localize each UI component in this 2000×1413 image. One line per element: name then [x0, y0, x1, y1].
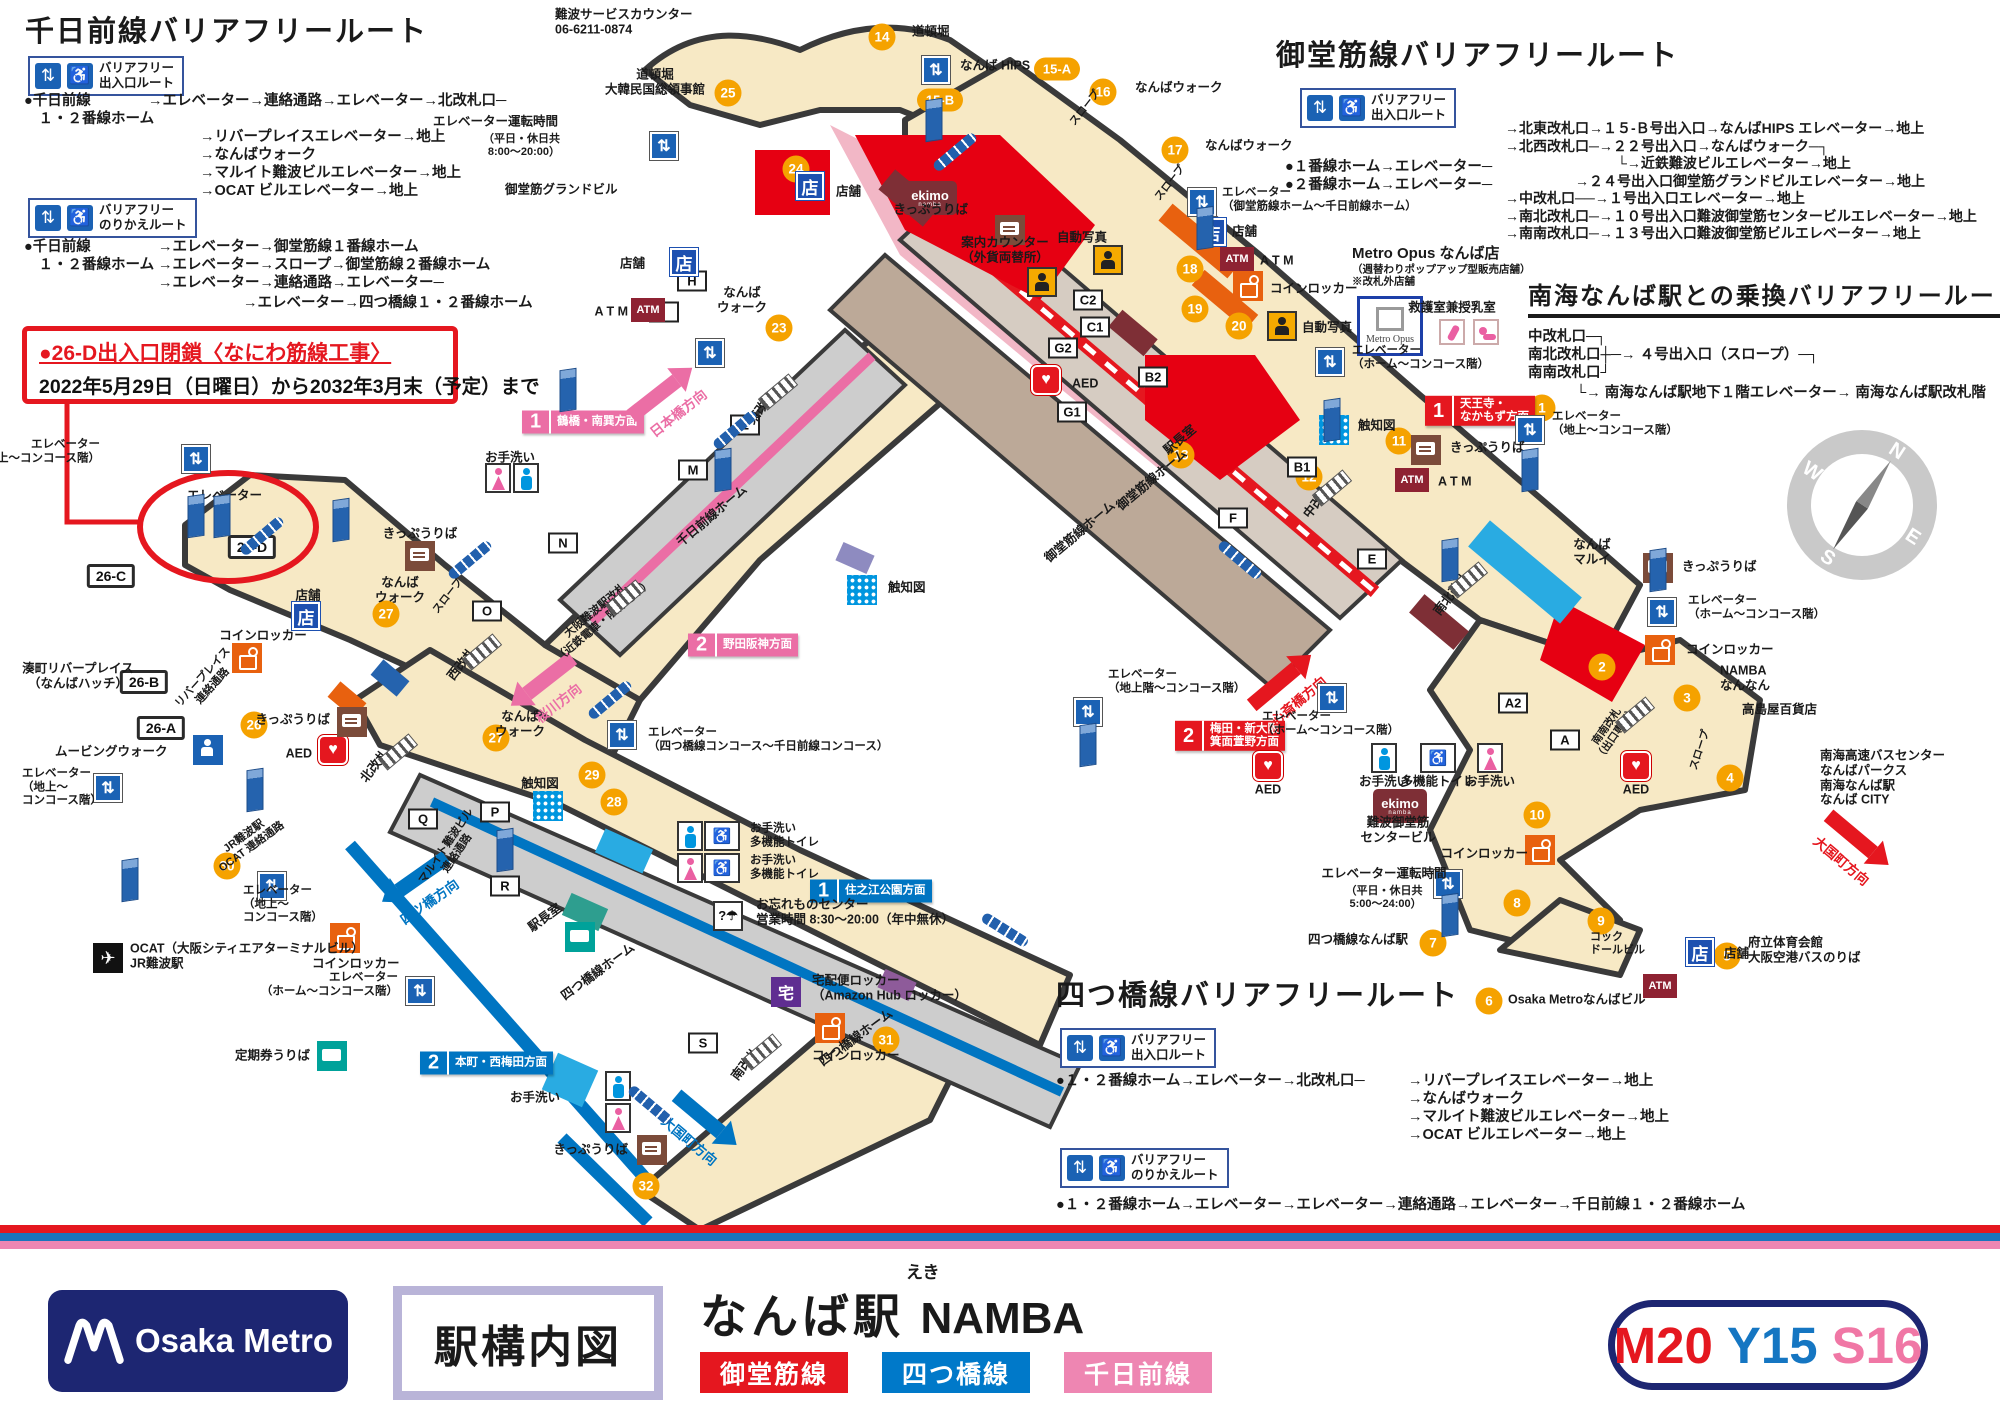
elevator-icon: ⇅ — [1316, 348, 1344, 376]
map-text-label: A T M — [1438, 475, 1472, 490]
elevator-point-A2: A2 — [1498, 693, 1528, 714]
exit-number-20: 20 — [1226, 313, 1253, 340]
elevator-point-C1: C1 — [1080, 317, 1110, 338]
station-furigana: えき — [906, 1258, 940, 1283]
map-text-label: 御堂筋線ホーム — [1042, 498, 1118, 565]
station-map-label-box: 駅構内図 — [393, 1286, 663, 1400]
map-text-label: 自動写真 — [1057, 231, 1107, 246]
escalator-icon — [627, 1084, 674, 1126]
ticket-machine-icon — [337, 707, 367, 737]
accessible-toilet-icon: ♿ — [704, 821, 740, 851]
map-text-label: 道頓堀 大韓民国総領事館 — [605, 67, 705, 97]
elevator-shaft — [333, 498, 350, 542]
map-text-label: コインロッカー — [1270, 282, 1358, 297]
elevator-point-M: M — [678, 460, 708, 481]
map-text-label: A T M — [1260, 254, 1294, 269]
elevator-shaft — [1324, 398, 1341, 442]
aed-icon: ♥ — [1621, 751, 1651, 781]
map-text-label: スロープ — [1067, 88, 1102, 128]
map-text-label: コインロッカー — [812, 1049, 900, 1064]
map-text-label: 御堂筋グランドビル — [505, 183, 618, 198]
mens-toilet-icon — [1371, 743, 1397, 773]
station-code-pill: M20Y15S16 — [1608, 1300, 1928, 1390]
map-text-label: きっぷうりば — [893, 203, 968, 218]
map-text-label: エレベーター （ホーム～コンコース階） — [261, 971, 398, 998]
elevator-shaft — [1650, 548, 1667, 592]
map-text-label: （週替わりポップアップ型販売店舗） ※改札外店舗 — [1352, 264, 1531, 289]
exit-number-14: 14 — [869, 24, 896, 51]
line-chips: 御堂筋線四つ橋線千日前線 — [700, 1352, 1212, 1393]
map-text-label: ムービングウォーク — [55, 745, 168, 760]
map-text-label: きっぷうりば — [383, 527, 458, 542]
map-text-label: 自動写真 — [1302, 321, 1352, 336]
exit-number-15-A: 15-A — [1034, 58, 1080, 81]
exit-number-6: 6 — [1476, 988, 1503, 1015]
first-aid-room-icon — [1473, 319, 1499, 345]
exit-number-19: 19 — [1182, 296, 1209, 323]
map-text-label: コック ドールビル — [1590, 931, 1645, 957]
map-text-label: コインロッカー — [1440, 847, 1528, 862]
direction-marker: 2野田阪神方面 — [688, 634, 798, 657]
map-text-label: リバープレイス 連絡通路 — [173, 645, 243, 719]
shop-icon: 店 — [1686, 938, 1714, 966]
ticket-machine-icon — [405, 541, 435, 571]
elevator-point-C2: C2 — [1073, 290, 1103, 311]
map-text-label: なんば マルイ — [1573, 537, 1611, 567]
escalator-icon — [980, 912, 1030, 949]
atm-icon: ATM — [631, 298, 665, 322]
map-text-label: きっぷうりば — [553, 1143, 628, 1158]
elevator-point-Q: Q — [408, 809, 438, 830]
tactile-map-icon — [847, 575, 877, 605]
parcel-locker-icon: 宅 — [771, 977, 801, 1007]
escalator-icon — [1217, 539, 1264, 581]
elevator-point-S: S — [688, 1033, 718, 1054]
map-text-label: 南海高速バスセンター なんばパークス 南海なんば駅 なんば CITY — [1820, 749, 1945, 808]
destination-label: 本町・西梅田方面 — [449, 1052, 553, 1075]
elevator-icon: ⇅ — [696, 339, 724, 367]
map-text-label: スロープ — [1688, 728, 1713, 771]
direction-arrow: 大国町方向 — [654, 1083, 747, 1172]
elevator-shaft — [926, 98, 943, 142]
map-text-label: きっぷうりば — [1682, 560, 1757, 575]
map-text-label: Metro Opus なんば店 — [1352, 245, 1500, 263]
moving-walkway-icon — [193, 735, 223, 765]
elevator-shaft — [188, 494, 205, 538]
logo-wordmark: Osaka Metro — [135, 1322, 333, 1360]
exit-number-3: 3 — [1674, 685, 1701, 712]
map-text-label: 救護室兼授乳室 — [1408, 301, 1496, 316]
map-text-label: 案内カウンター （外貨両替所） — [961, 235, 1049, 265]
exit-number-10: 10 — [1524, 802, 1551, 829]
elevator-point-E: E — [1357, 549, 1387, 570]
elevator-point-A: A — [1550, 730, 1580, 751]
shop-icon: 店 — [796, 172, 824, 200]
destination-label: 野田阪神方面 — [717, 634, 798, 657]
map-text-label: きっぷうりば — [255, 713, 330, 728]
accessible-toilet-icon: ♿ — [1420, 743, 1456, 773]
map-text-label: 難波御堂筋 センタービル — [1360, 815, 1435, 845]
platform-number: 1 — [522, 411, 551, 434]
elevator-shaft — [247, 768, 264, 812]
map-text-label: 触知図 — [521, 777, 559, 792]
map-text-label: スロープ — [430, 576, 465, 616]
map-text-label: エレベーター （地上～ コンコース階） — [22, 768, 102, 809]
map-text-label: 店舗 — [1724, 947, 1749, 962]
womens-toilet-icon — [485, 463, 511, 493]
womens-toilet-icon — [605, 1103, 631, 1133]
elevator-icon: ⇅ — [1648, 598, 1676, 626]
map-text-label: 道頓堀 — [912, 25, 950, 40]
map-text-label: （平日・休日共 8:00～20:00） — [482, 133, 560, 159]
map-text-label: 触知図 — [1358, 419, 1396, 434]
footer-bar: Osaka Metro 駅構内図 えき なんば駅 NAMBA 御堂筋線四つ橋線千… — [0, 1252, 2000, 1413]
elevator-point-N: N — [548, 533, 578, 554]
line-chip: 四つ橋線 — [882, 1352, 1030, 1393]
map-text-label: 湊町リバープレイス （なんばハッチ） — [22, 661, 133, 691]
map-text-label: コインロッカー — [1686, 643, 1774, 658]
coin-locker-icon — [1645, 635, 1675, 665]
elevator-icon: ⇅ — [650, 132, 678, 160]
ticket-machine-icon — [637, 1135, 667, 1165]
elevator-shaft — [1197, 206, 1214, 250]
map-text-label: 難波サービスカウンター 06-6211-0874 — [555, 7, 693, 37]
mens-toilet-icon — [513, 463, 539, 493]
line-stripe — [0, 1241, 2000, 1249]
line-stripe — [0, 1225, 2000, 1233]
commuter-pass-icon — [565, 922, 595, 952]
mens-toilet-icon — [605, 1071, 631, 1101]
exit-number-18: 18 — [1177, 256, 1204, 283]
ticket-machine-icon — [1411, 435, 1441, 465]
escalator-icon — [447, 539, 494, 581]
elevator-icon: ⇅ — [1074, 698, 1102, 726]
elevator-shaft — [1442, 893, 1459, 937]
map-text-label: 店舗 — [1232, 225, 1257, 240]
map-text-label: エレベーター （ホーム～コンコース階） — [1262, 710, 1399, 737]
exit-number-29: 29 — [579, 762, 606, 789]
exit-number-32: 32 — [633, 1173, 660, 1200]
photo-booth-icon — [1267, 311, 1297, 341]
elevator-point-G2: G2 — [1048, 338, 1078, 359]
elevator-shaft — [1522, 448, 1539, 492]
womens-toilet-icon — [677, 853, 703, 883]
shop-icon: 店 — [292, 602, 320, 630]
map-text-label: 触知図 — [888, 581, 926, 596]
map-text-label: エレベーター運転時間 — [1321, 867, 1446, 882]
map-text-label: エレベーター （御堂筋線ホーム～千日前線ホーム） — [1222, 186, 1417, 213]
map-text-label: エレベーター （ホーム～コンコース階） — [1688, 594, 1825, 621]
coin-locker-icon — [1525, 835, 1555, 865]
lost-and-found-icon: ?☂ — [713, 901, 743, 931]
atm-icon: ATM — [1220, 247, 1254, 271]
exit-number-2: 2 — [1589, 654, 1616, 681]
map-text-label: エレベーター （地上階～コンコース階） — [1108, 668, 1245, 695]
map-text-label: コインロッカー — [219, 629, 307, 644]
map-text-label: 店舗 — [620, 257, 645, 272]
map-text-label: 店舗 — [295, 589, 320, 604]
map-text-label: お手洗い — [485, 451, 535, 466]
map-annotations: 1415-A15-B161718192023242526272728293031… — [0, 0, 2000, 1230]
elevator-shaft — [1442, 538, 1459, 582]
information-counter-icon — [1027, 267, 1057, 297]
elevator-point-O: O — [472, 601, 502, 622]
map-text-label: A T M — [594, 305, 628, 320]
station-romaji: NAMBA — [920, 1294, 1084, 1343]
map-text-label: JR難波駅 OCAT 連絡通路 — [209, 809, 287, 875]
elevator-shaft — [214, 494, 231, 538]
exit-number-4: 4 — [1717, 765, 1744, 792]
map-text-label: AED — [1255, 783, 1281, 798]
exit-box-26-C: 26-C — [87, 564, 135, 588]
elevator-point-R: R — [490, 876, 520, 897]
map-text-label: 宅配便ロッカー （Amazon Hub ロッカー） — [812, 973, 967, 1003]
station-code: S16 — [1832, 1316, 1923, 1375]
atm-icon: ATM — [1643, 974, 1677, 998]
osaka-metro-logo: Osaka Metro — [48, 1290, 348, 1392]
accessible-toilet-icon: ♿ — [704, 853, 740, 883]
commuter-pass-icon — [317, 1041, 347, 1071]
map-text-label: お手洗い 多機能トイレ — [750, 822, 819, 849]
atm-icon: ATM — [1395, 468, 1429, 492]
map-text-label: Osaka Metroなんばビル — [1508, 993, 1646, 1008]
exit-number-17: 17 — [1162, 137, 1189, 164]
station-code: Y15 — [1727, 1316, 1818, 1375]
elevator-icon: ⇅ — [182, 445, 210, 473]
line-stripe — [0, 1233, 2000, 1241]
station-code: M20 — [1614, 1316, 1713, 1375]
elevator-shaft — [497, 828, 514, 872]
map-text-label: エレベーター （地上～コンコース階） — [0, 438, 100, 465]
map-text-label: お手洗い — [1465, 775, 1515, 790]
map-text-label: なんば ウォーク — [717, 285, 767, 315]
nursing-room-icon — [1439, 319, 1465, 345]
exit-number-23: 23 — [766, 315, 793, 342]
exit-number-8: 8 — [1504, 890, 1531, 917]
mens-toilet-icon — [677, 821, 703, 851]
aed-icon: ♥ — [1031, 365, 1061, 395]
map-text-label: なんばウォーク — [1135, 81, 1223, 96]
map-text-label: （平日・休日共 5:00～24:00） — [1346, 885, 1423, 911]
airport-terminal-icon: ✈ — [93, 943, 123, 973]
womens-toilet-icon — [1477, 743, 1503, 773]
elevator-shaft — [122, 858, 139, 902]
map-text-label: エレベーター （地上～ コンコース階） — [243, 885, 323, 926]
map-text-label: 御堂筋線ホーム — [1114, 446, 1190, 513]
elevator-point-G1: G1 — [1057, 402, 1087, 423]
map-text-label: 四つ橋線なんば駅 — [1308, 933, 1408, 948]
elevator-shaft — [1080, 723, 1097, 767]
platform-number: 2 — [688, 634, 717, 657]
map-text-label: AED — [1072, 377, 1098, 392]
elevator-icon: ⇅ — [406, 977, 434, 1005]
elevator-point-B2: B2 — [1138, 367, 1168, 388]
exit-number-25: 25 — [715, 80, 742, 107]
elevator-icon: ⇅ — [1318, 684, 1346, 712]
elevator-shaft — [715, 448, 732, 492]
map-text-label: エレベーター （四つ橋線コンコース～千日前線コンコース） — [648, 726, 888, 753]
station-map-page: 千日前線バリアフリールート ⇅ ♿ バリアフリー 出入口ルート ●千日前線 １・… — [0, 0, 2000, 1413]
map-text-label: お忘れものセンター 営業時間 8:30～20:00（年中無休） — [756, 897, 954, 927]
map-text-label: 千日前線ホーム — [674, 482, 750, 549]
map-text-label: お手洗い — [510, 1091, 560, 1106]
elevator-icon: ⇅ — [608, 721, 636, 749]
map-text-label: エレベーター （ホーム～コンコース階） — [1352, 344, 1489, 371]
map-text-label: なんば ウォーク — [375, 575, 425, 605]
map-text-label: なんば ウォーク — [495, 709, 545, 739]
map-text-label: NAMBA なんなん — [1720, 663, 1770, 693]
map-text-label: AED — [286, 747, 312, 762]
map-text-label: なんばウォーク — [1205, 139, 1293, 154]
map-text-label: 府立体育会館 大阪空港バスのりば — [1748, 935, 1861, 965]
platform-number: 2 — [1175, 721, 1204, 751]
map-text-label: スロープ — [1152, 163, 1187, 203]
direction-marker: 1鶴橋・南巽方面 — [522, 411, 644, 434]
line-color-stripes — [0, 1225, 2000, 1249]
map-text-label: 駅長室 — [525, 901, 564, 935]
elevator-icon: ⇅ — [922, 56, 950, 84]
station-name-block: えき なんば駅 NAMBA — [700, 1278, 1084, 1347]
map-text-label: お手洗い 多機能トイレ — [750, 854, 819, 881]
map-text-label: なんば HIPS — [960, 59, 1030, 74]
exit-box-26-A: 26-A — [137, 716, 185, 740]
map-text-label: 定期券うりば — [235, 1049, 310, 1064]
map-text-label: 高島屋百貨店 — [1742, 703, 1817, 718]
elevator-shaft — [560, 368, 577, 412]
photo-booth-icon — [1093, 245, 1123, 275]
platform-number: 1 — [1425, 396, 1454, 426]
station-name: なんば駅 — [700, 1290, 904, 1343]
map-text-label: 店舗 — [836, 185, 861, 200]
coin-locker-icon — [1233, 271, 1263, 301]
map-text-label: きっぷうりば — [1450, 441, 1525, 456]
exit-number-28: 28 — [601, 789, 628, 816]
map-text-label: AED — [1623, 783, 1649, 798]
tactile-map-icon — [533, 791, 563, 821]
map-text-label: コインロッカー — [312, 957, 400, 972]
shop-icon: 店 — [670, 248, 698, 276]
elevator-point-F: F — [1218, 508, 1248, 529]
station-map-label: 駅構内図 — [434, 1311, 622, 1375]
aed-icon: ♥ — [318, 735, 348, 765]
map-text-label: エレベーター （地上～コンコース階） — [1552, 410, 1678, 437]
aed-icon: ♥ — [1253, 751, 1283, 781]
platform-number: 2 — [420, 1052, 449, 1075]
direction-marker: 2本町・西梅田方面 — [420, 1052, 553, 1075]
line-chip: 千日前線 — [1064, 1352, 1212, 1393]
line-chip: 御堂筋線 — [700, 1352, 848, 1393]
metro-m-icon — [63, 1312, 125, 1370]
direction-arrow: 大国町方向 — [1806, 803, 1899, 892]
elevator-point-B1: B1 — [1287, 457, 1317, 478]
map-text-label: エレベーター運転時間 — [433, 115, 558, 130]
